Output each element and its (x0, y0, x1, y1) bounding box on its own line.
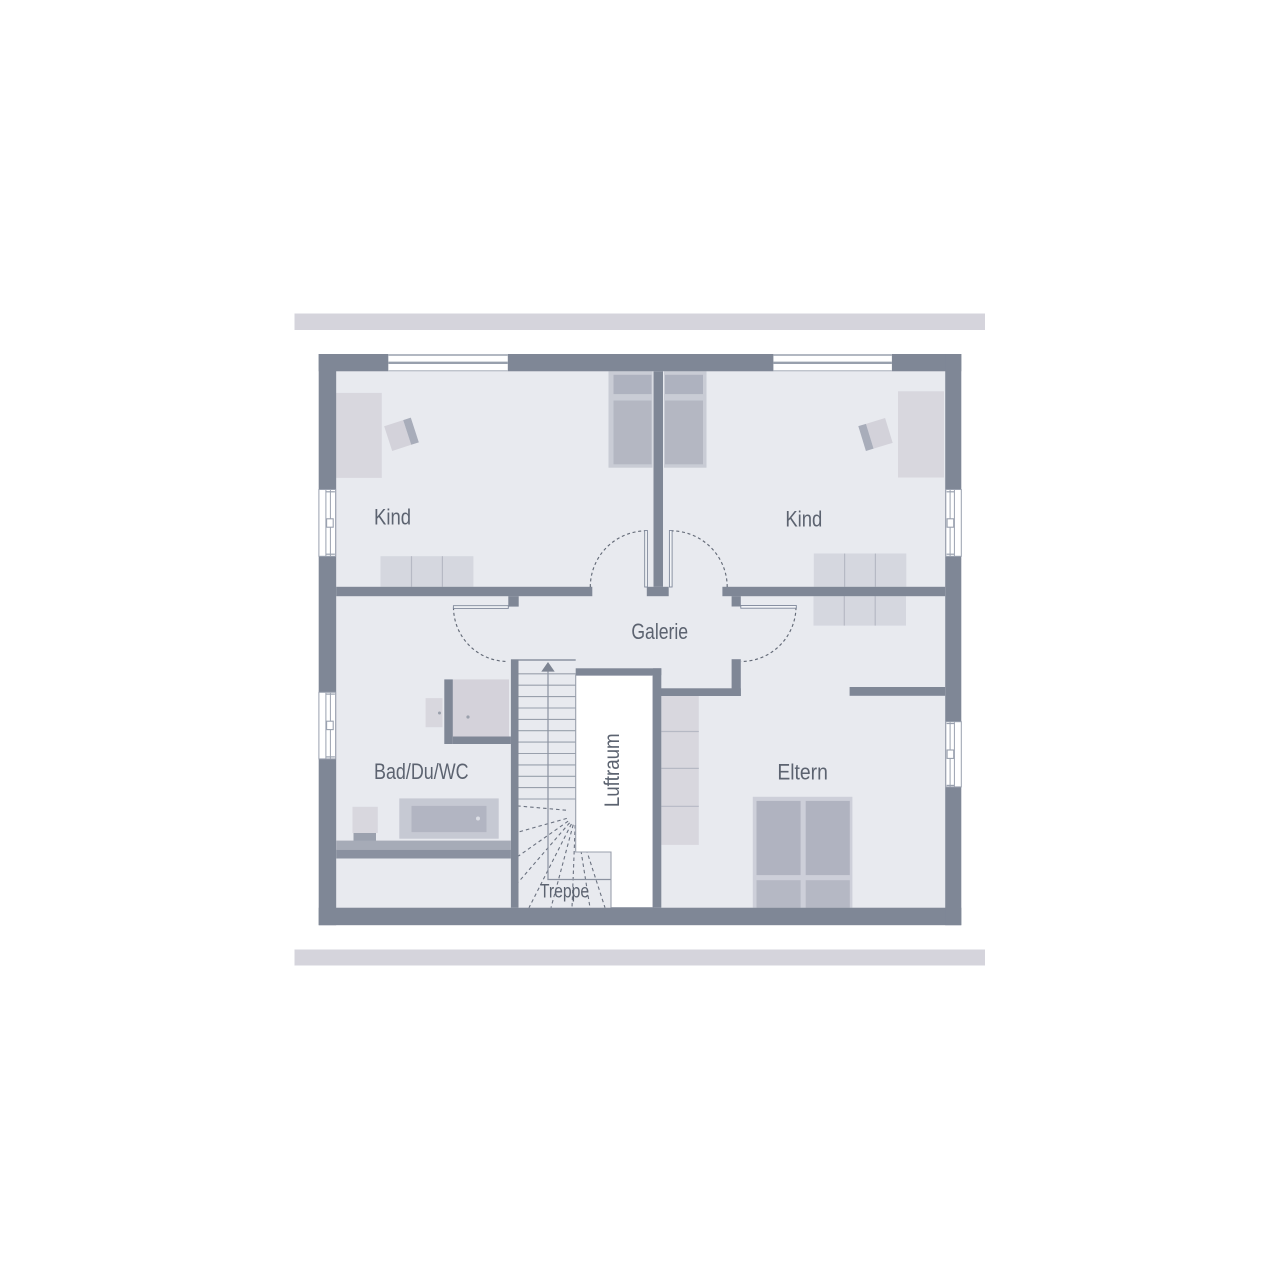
svg-text:Bad/Du/WC: Bad/Du/WC (374, 760, 469, 784)
svg-text:Kind: Kind (785, 508, 822, 532)
svg-text:Treppe: Treppe (540, 880, 589, 902)
svg-text:Luftraum: Luftraum (601, 733, 624, 807)
svg-text:Kind: Kind (374, 506, 411, 530)
svg-text:Eltern: Eltern (777, 760, 828, 784)
svg-text:Galerie: Galerie (631, 620, 688, 644)
